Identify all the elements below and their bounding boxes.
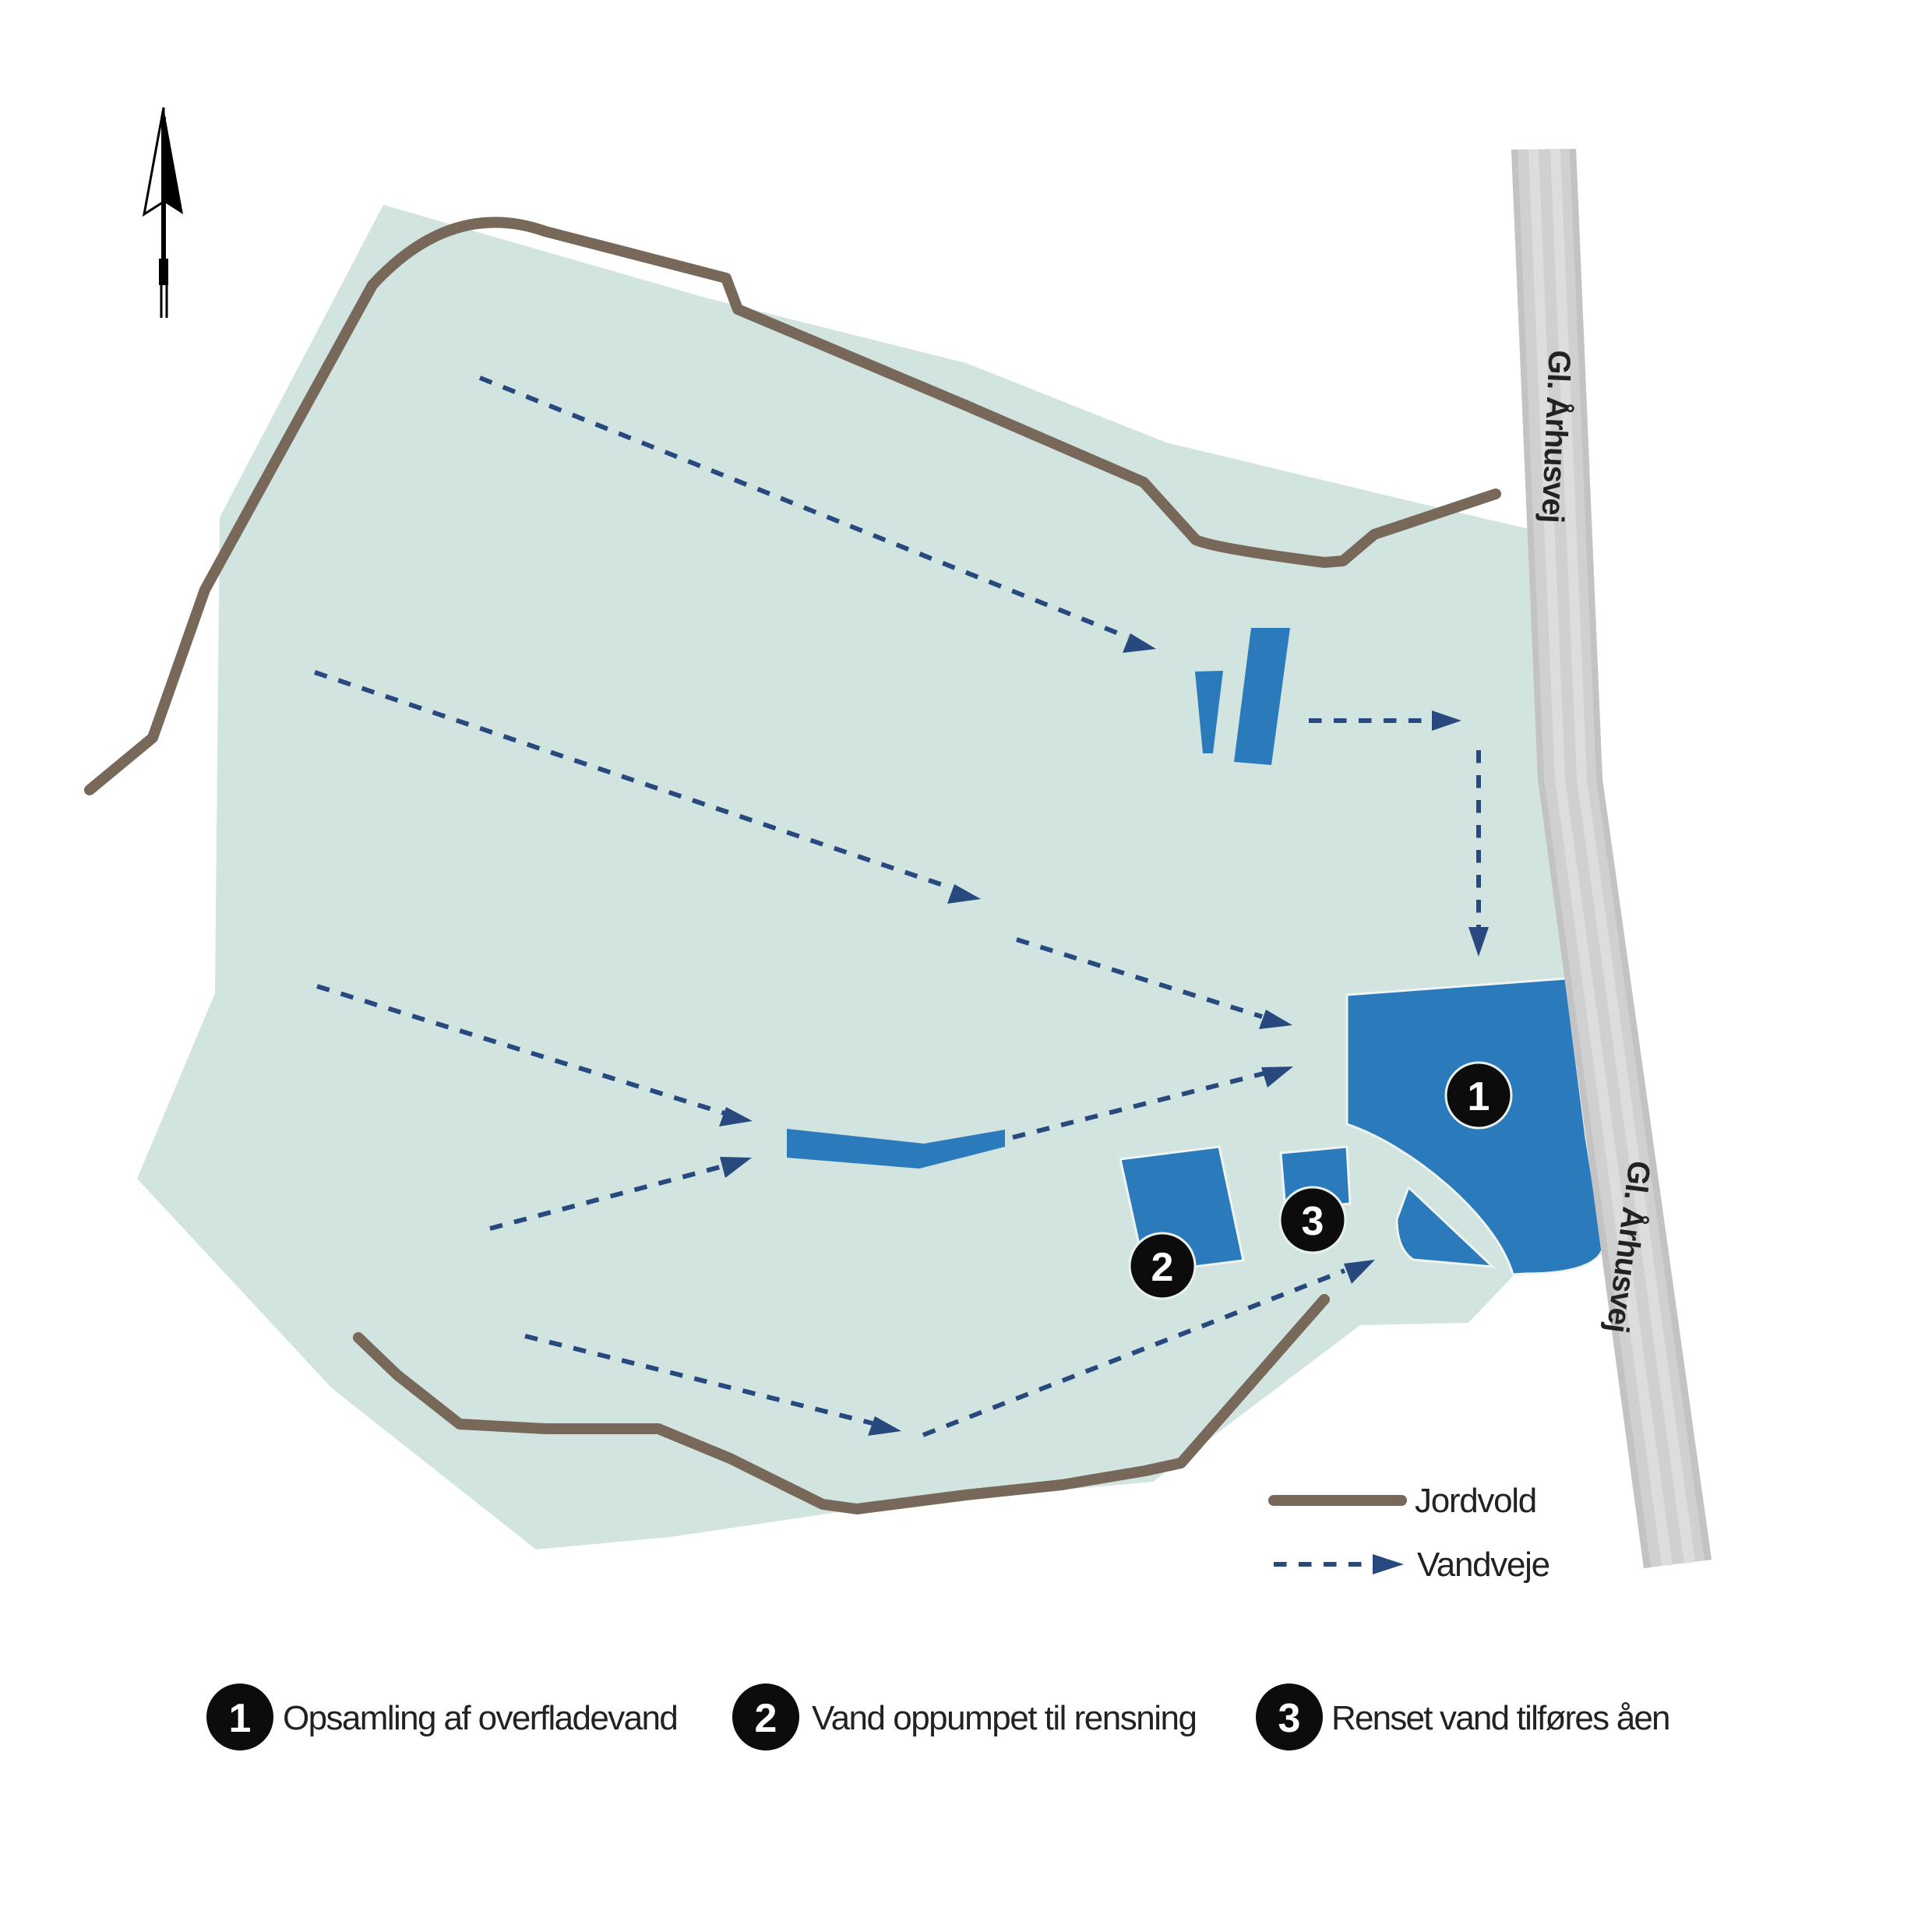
svg-text:Gl. Århusvej: Gl. Århusvej xyxy=(1535,350,1577,524)
svg-text:1: 1 xyxy=(229,1696,252,1741)
svg-text:Opsamling af overfladevand: Opsamling af overfladevand xyxy=(283,1699,677,1737)
svg-text:3: 3 xyxy=(1278,1696,1301,1741)
svg-text:2: 2 xyxy=(755,1696,777,1741)
svg-text:3: 3 xyxy=(1302,1199,1324,1244)
svg-text:Vandveje: Vandveje xyxy=(1417,1546,1549,1584)
svg-text:Vand oppumpet til rensning: Vand oppumpet til rensning xyxy=(812,1699,1196,1737)
svg-text:Jordvold: Jordvold xyxy=(1415,1482,1536,1520)
svg-text:1: 1 xyxy=(1468,1074,1490,1119)
svg-text:Renset vand tilføres åen: Renset vand tilføres åen xyxy=(1331,1699,1669,1737)
svg-text:2: 2 xyxy=(1151,1245,1174,1290)
